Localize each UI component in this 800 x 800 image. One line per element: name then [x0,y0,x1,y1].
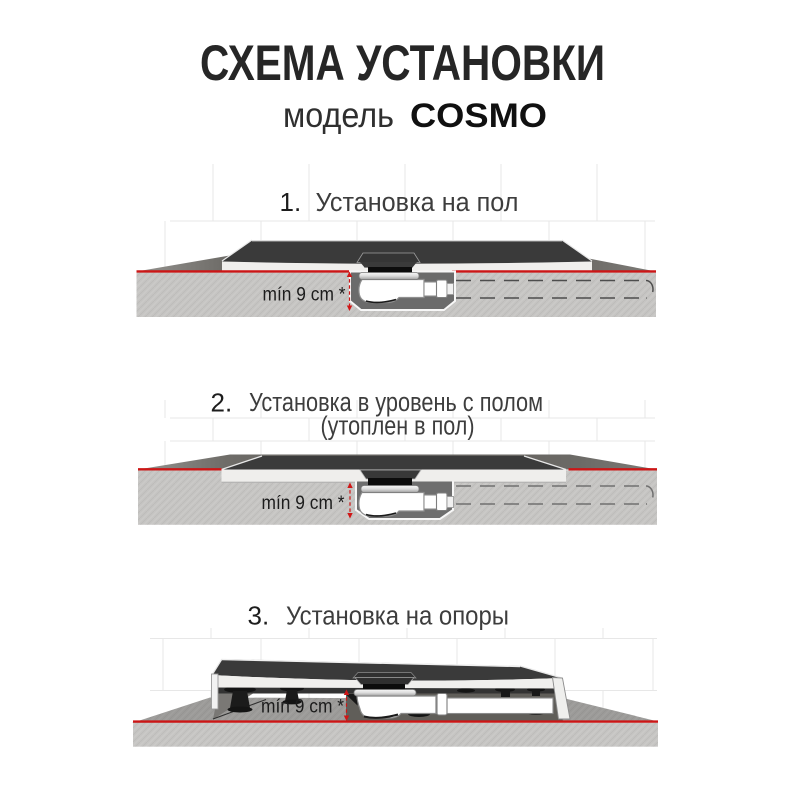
svg-text:mín 9 cm *: mín 9 cm * [261,696,344,718]
svg-text:mín 9 cm *: mín 9 cm * [262,492,345,514]
svg-text:3.: 3. [248,601,270,631]
svg-text:COSMO: COSMO [410,97,547,135]
svg-text:модель: модель [283,96,394,135]
svg-text:1.: 1. [280,187,302,217]
svg-text:Установка на опоры: Установка на опоры [286,603,509,631]
svg-text:СХЕМА УСТАНОВКИ: СХЕМА УСТАНОВКИ [200,35,605,91]
svg-text:2.: 2. [211,388,233,418]
svg-text:mín 9 cm *: mín 9 cm * [263,284,346,306]
svg-text:Установка на пол: Установка на пол [316,189,519,217]
svg-text:(утоплен в пол): (утоплен в пол) [321,413,475,441]
